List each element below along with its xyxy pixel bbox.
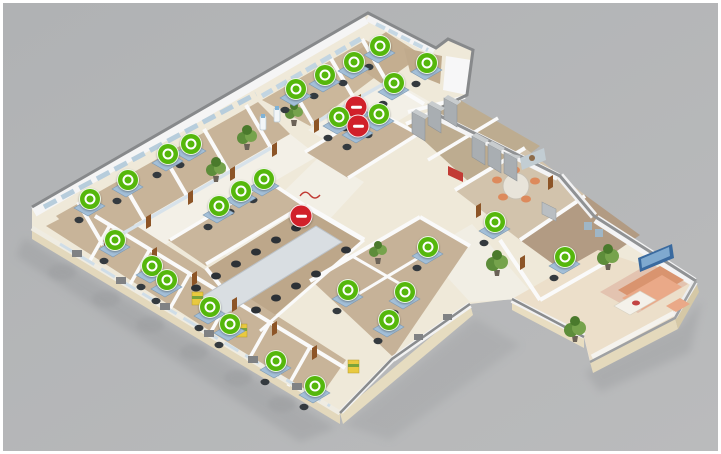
desk-marker-available[interactable] bbox=[416, 52, 438, 74]
desk-marker-available[interactable] bbox=[199, 296, 221, 318]
desk-marker-available[interactable] bbox=[554, 246, 576, 268]
desk-marker-available[interactable] bbox=[219, 313, 241, 335]
desk-marker-available[interactable] bbox=[253, 168, 275, 190]
desk-marker-available[interactable] bbox=[369, 35, 391, 57]
desk-marker-available[interactable] bbox=[378, 309, 400, 331]
desk-marker-available[interactable] bbox=[230, 180, 252, 202]
desk-marker-available[interactable] bbox=[117, 169, 139, 191]
desk-marker-available[interactable] bbox=[337, 279, 359, 301]
desk-marker-occupied[interactable] bbox=[290, 205, 313, 228]
desk-marker-available[interactable] bbox=[157, 143, 179, 165]
desk-marker-available[interactable] bbox=[285, 78, 307, 100]
desk-marker-available[interactable] bbox=[265, 350, 287, 372]
desk-marker-available[interactable] bbox=[417, 236, 439, 258]
desk-marker-available[interactable] bbox=[79, 188, 101, 210]
desk-marker-available[interactable] bbox=[156, 269, 178, 291]
desk-marker-available[interactable] bbox=[368, 103, 390, 125]
desk-marker-occupied[interactable] bbox=[347, 115, 370, 138]
desk-marker-available[interactable] bbox=[394, 281, 416, 303]
desk-marker-available[interactable] bbox=[180, 133, 202, 155]
desk-marker-available[interactable] bbox=[208, 195, 230, 217]
desk-marker-available[interactable] bbox=[104, 229, 126, 251]
desk-marker-available[interactable] bbox=[484, 211, 506, 233]
desk-marker-available[interactable] bbox=[304, 375, 326, 397]
desk-marker-available[interactable] bbox=[343, 51, 365, 73]
desk-marker-available[interactable] bbox=[314, 64, 336, 86]
floorplan-canvas[interactable] bbox=[0, 0, 721, 454]
desk-marker-available[interactable] bbox=[383, 72, 405, 94]
